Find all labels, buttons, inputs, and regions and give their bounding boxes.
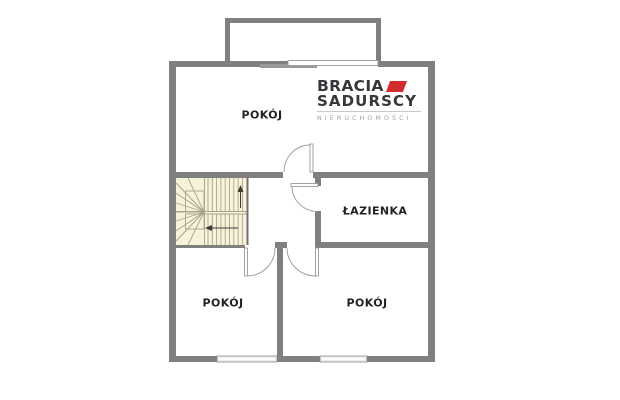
room-bottom-left-label: POKÓJ <box>203 297 244 310</box>
staircase <box>176 178 249 245</box>
agency-logo: BRACIA SADURSCY NIERUCHOMOŚCI <box>317 79 427 122</box>
logo-tagline: NIERUCHOMOŚCI <box>317 115 427 122</box>
logo-divider <box>317 111 421 112</box>
bathroom-label: ŁAZIENKA <box>343 205 408 218</box>
room-bottom-right-label: POKÓJ <box>347 297 388 310</box>
window-bottom-right <box>320 356 367 362</box>
room-top-label: POKÓJ <box>242 109 283 122</box>
logo-red-flag-icon <box>386 81 407 92</box>
floorplan-drawing <box>0 0 620 400</box>
logo-brand-line2: SADURSCY <box>317 94 427 109</box>
floorplan-page: POKÓJ ŁAZIENKA POKÓJ POKÓJ BRACIA SADURS… <box>0 0 620 400</box>
window-bottom-left <box>217 356 277 362</box>
hallway-area <box>248 178 315 242</box>
balcony-area <box>230 23 376 61</box>
